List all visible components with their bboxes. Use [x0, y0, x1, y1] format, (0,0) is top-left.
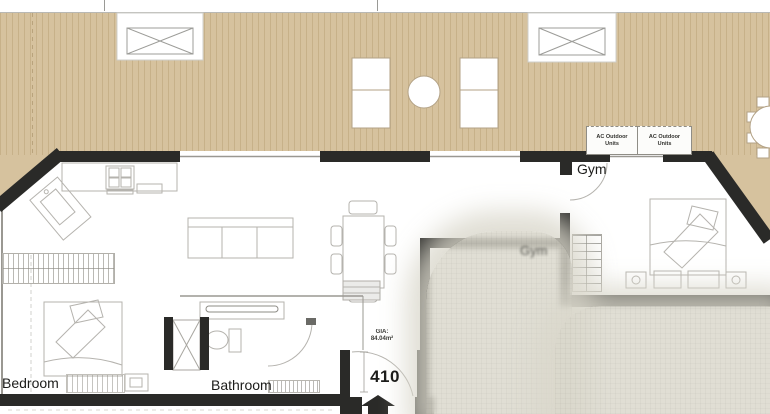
sun-loungers [352, 58, 498, 128]
entrance-arrow [361, 395, 395, 414]
gia-annotation: GIA: 84.04m² [356, 329, 408, 343]
kitchen-sink [30, 177, 91, 240]
deck-round-table [408, 76, 440, 108]
ac-unit-1-line2: Units [587, 141, 637, 148]
ac-outdoor-unit-1: AC Outdoor Units [586, 126, 638, 155]
shelf-ladder [572, 234, 602, 292]
gym-label: Gym [577, 161, 607, 177]
outdoor-dining-set [747, 97, 770, 158]
unit-number: 410 [362, 367, 408, 387]
bedroom-door [173, 320, 200, 370]
gym-label-blurred: Gym [520, 243, 547, 258]
gia-label: GIA: [376, 329, 389, 335]
gia-value: 84.04m² [371, 336, 393, 342]
entrance-niche [343, 281, 380, 300]
bedroom-label: Bedroom [2, 375, 59, 391]
floor-plan: Gym Bedroom Bathroom Gym 410 GIA: 84.04m… [0, 0, 770, 414]
ac-unit-2-line2: Units [638, 141, 691, 148]
bathroom-door-arc [268, 322, 312, 366]
bed-right [626, 199, 746, 288]
bathroom-fixtures [200, 302, 312, 366]
sofa [188, 218, 293, 258]
blurred-region-terrace [555, 306, 770, 414]
ac-outdoor-unit-2: AC Outdoor Units [637, 126, 692, 155]
bathroom-radiator [268, 380, 320, 393]
bedroom-dresser [66, 374, 125, 393]
bathroom-label: Bathroom [211, 377, 272, 393]
blurred-region-gym [426, 231, 572, 414]
wardrobe-rail [2, 253, 115, 284]
